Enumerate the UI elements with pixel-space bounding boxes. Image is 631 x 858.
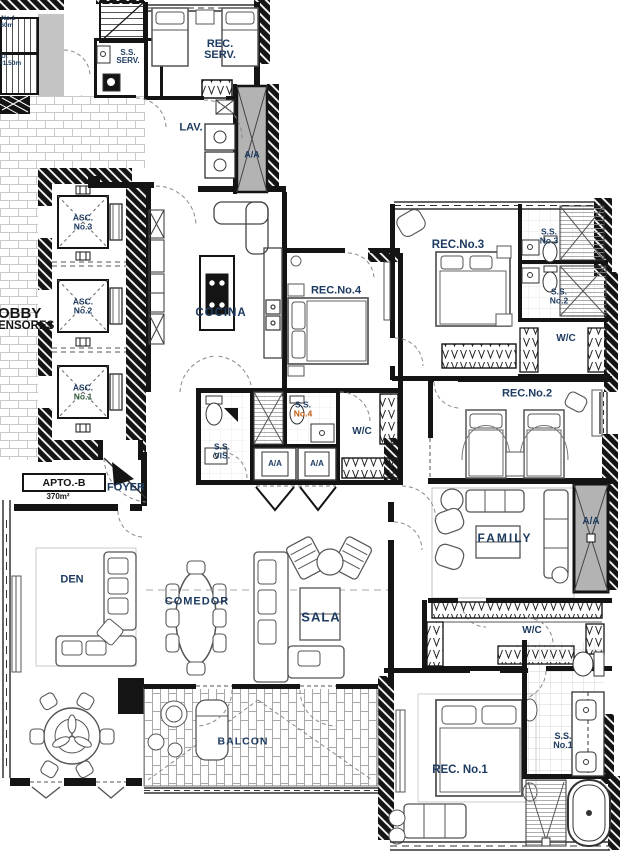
room-label-family: FAMILY (478, 532, 533, 544)
kitchen (146, 186, 287, 396)
lobby-label: OBBY ENSORES (0, 306, 54, 333)
family-sofa-top (466, 490, 524, 512)
apartment-area: 370m² (46, 493, 69, 501)
room-label-ss-serv: S.S.SERV. (116, 49, 139, 65)
stair-label-1: A No.1 3.60m (0, 16, 15, 29)
twin-bed-b (520, 410, 568, 478)
family-sofa-right (544, 490, 568, 578)
room-label-rec4: REC.No.4 (311, 285, 361, 296)
room-label-ss3: S.S.No.3 (540, 227, 558, 244)
room-label-balcon: BALCON (218, 737, 269, 748)
room-label-rec1: REC. No.1 (432, 765, 488, 777)
room-label-wc-top: W/C (556, 334, 575, 344)
plan-drawing (0, 0, 631, 858)
ac-shaft-right (574, 484, 608, 592)
ss4-shower (254, 392, 283, 444)
bed-4 (288, 298, 368, 364)
master-vanity (572, 692, 604, 776)
room-label-ss1: S.S.No.1 (553, 732, 573, 750)
den-round-table (30, 691, 114, 779)
room-label-cocina: COCINA (195, 308, 246, 320)
room-label-foyer: FOYER (107, 482, 145, 493)
bed-1 (436, 700, 522, 796)
room-label-rec-serv: REC.SERV. (204, 39, 236, 61)
room-label-rec2: REC.No.2 (502, 388, 552, 399)
closet-3 (442, 344, 516, 368)
laundry-appliances (205, 100, 235, 178)
room-label-wc-mid: W/C (352, 427, 371, 437)
ac-closets (254, 448, 336, 510)
room-label-ss4: S.S.No.4 (294, 400, 312, 417)
room-label-sala: SALA (301, 610, 340, 623)
room-label-ss2: S.S.No.2 (550, 287, 568, 304)
master-toilet (573, 652, 604, 676)
floor-plan: A No.1 3.60m E.U. h=1.50m S.S.SERV. REC.… (0, 0, 631, 858)
ac-shaft-top (237, 86, 267, 192)
serv-closet (202, 80, 232, 98)
sala-lounge-chairs (285, 536, 373, 581)
bedroom-3 (384, 202, 610, 381)
master-shower (526, 780, 566, 846)
shaft-label-aa-right: A/A (582, 517, 599, 527)
shaft-label-aa-top: A/A (244, 150, 260, 159)
living-room (254, 502, 422, 686)
twin-bed-a (462, 410, 510, 478)
room-label-wc-bottom: W/C (522, 626, 541, 636)
stair-label-2: E.U. h=1.50m (0, 54, 21, 67)
apartment-tag: APTO.-B (22, 473, 106, 492)
bedroom1-sofa (389, 804, 466, 844)
closet-label-aa-2: A/A (310, 460, 324, 468)
bathtub (568, 780, 610, 846)
elevator-label-3: ASC.No.3 (73, 213, 93, 230)
den-sofa (56, 552, 136, 666)
den (3, 500, 142, 798)
kitchen-appliance-column (149, 210, 164, 344)
room-label-den: DEN (60, 574, 83, 585)
closet-label-aa-1: A/A (268, 460, 282, 468)
room-label-ss-vis: S.S.VIS. (214, 442, 230, 459)
family-side-table (441, 489, 463, 511)
room-label-comedor: COMEDOR (165, 596, 229, 607)
room-label-lav: LAV. (179, 122, 202, 133)
elevator-label-2: ASC.No.2 (73, 297, 93, 314)
room-label-rec3: REC.No.3 (432, 240, 484, 252)
elevator-label-1: ASC.No.1 (73, 383, 93, 400)
